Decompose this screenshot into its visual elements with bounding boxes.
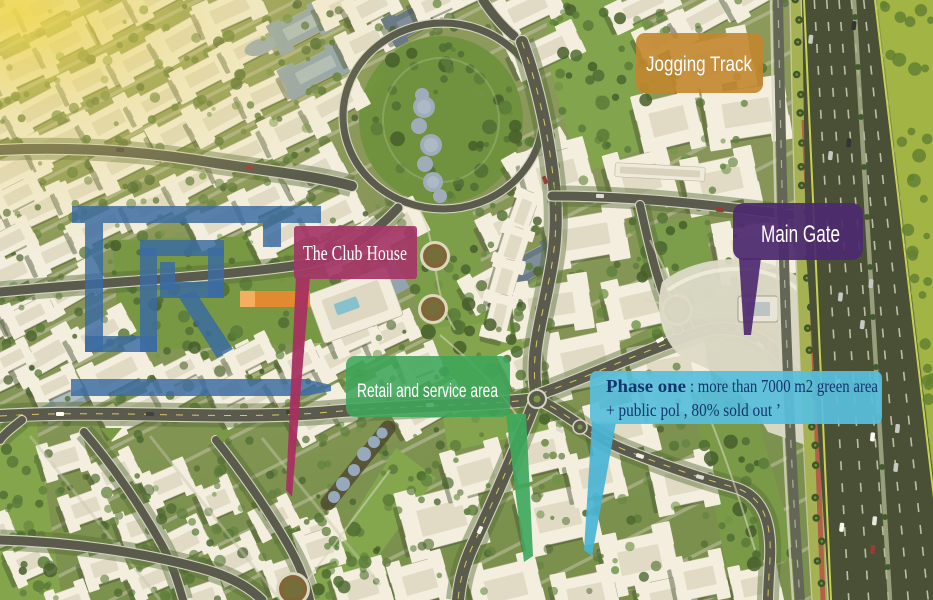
svg-text:The Club House: The Club House [303, 241, 407, 265]
svg-text:+ public pol , 80% sold out ’: + public pol , 80% sold out ’ [606, 400, 781, 420]
svg-text:: more than 7000 m2 green area: : more than 7000 m2 green area [690, 376, 878, 396]
svg-text:Retail and service area: Retail and service area [357, 381, 498, 402]
svg-text:Phase one: Phase one [606, 376, 686, 396]
svg-text:Main Gate: Main Gate [761, 221, 840, 248]
svg-text:Jogging Track: Jogging Track [646, 53, 752, 76]
